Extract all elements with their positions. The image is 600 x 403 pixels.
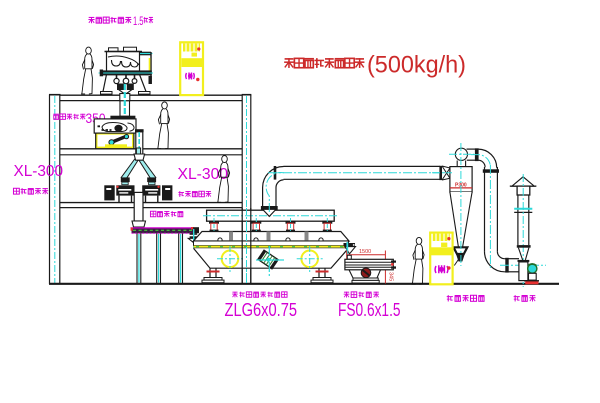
svg-text:1500: 1500: [359, 249, 371, 255]
svg-text:(500kg/h): (500kg/h): [367, 52, 466, 79]
svg-text:XL-300: XL-300: [14, 163, 64, 180]
svg-text:ZLG6x0.75: ZLG6x0.75: [225, 299, 298, 320]
svg-text:1.5: 1.5: [133, 14, 144, 28]
svg-text:345: 345: [388, 272, 394, 281]
svg-text:FS0.6x1.5: FS0.6x1.5: [338, 299, 401, 320]
